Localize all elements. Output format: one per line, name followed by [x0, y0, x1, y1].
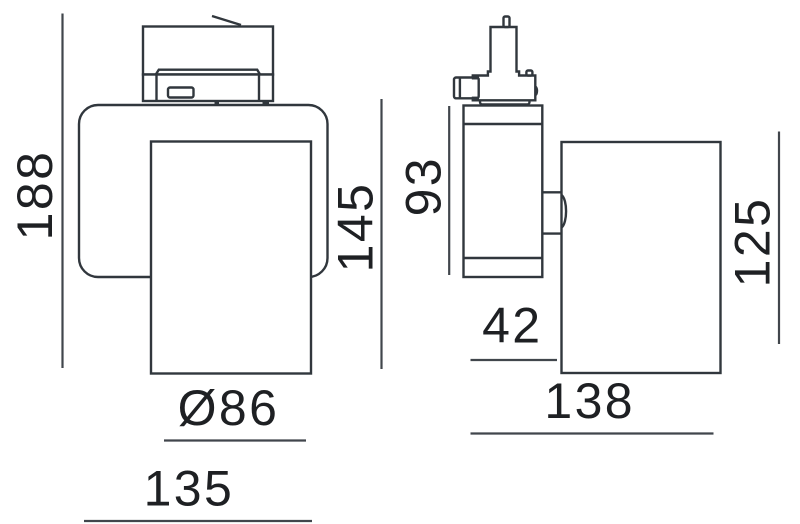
- svg-text:145: 145: [327, 182, 383, 273]
- svg-text:93: 93: [396, 156, 452, 216]
- svg-text:188: 188: [7, 150, 63, 241]
- svg-text:125: 125: [724, 197, 780, 288]
- svg-text:Ø86: Ø86: [178, 380, 280, 436]
- svg-text:42: 42: [482, 297, 542, 353]
- svg-text:138: 138: [544, 373, 635, 429]
- svg-text:135: 135: [144, 461, 235, 517]
